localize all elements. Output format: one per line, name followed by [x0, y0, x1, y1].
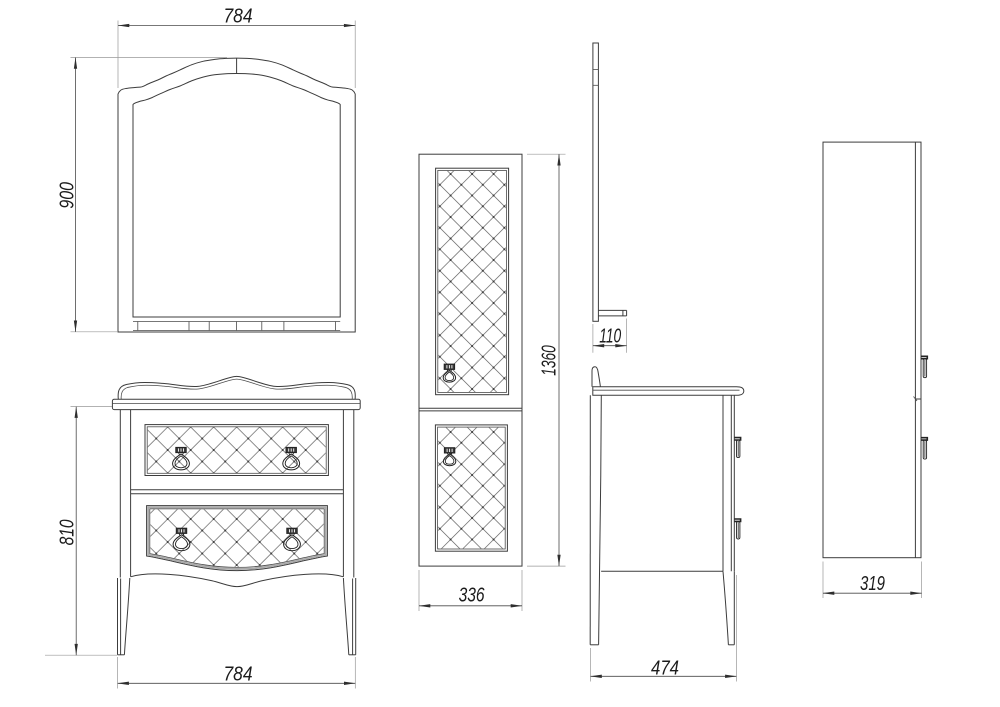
- svg-text:784: 784: [224, 6, 253, 28]
- svg-text:110: 110: [599, 325, 621, 347]
- svg-text:900: 900: [57, 182, 79, 209]
- svg-text:1360: 1360: [539, 345, 561, 376]
- svg-text:810: 810: [56, 519, 78, 545]
- svg-text:474: 474: [651, 658, 679, 680]
- svg-text:784: 784: [224, 663, 253, 685]
- svg-text:319: 319: [860, 573, 885, 595]
- svg-text:336: 336: [459, 585, 486, 607]
